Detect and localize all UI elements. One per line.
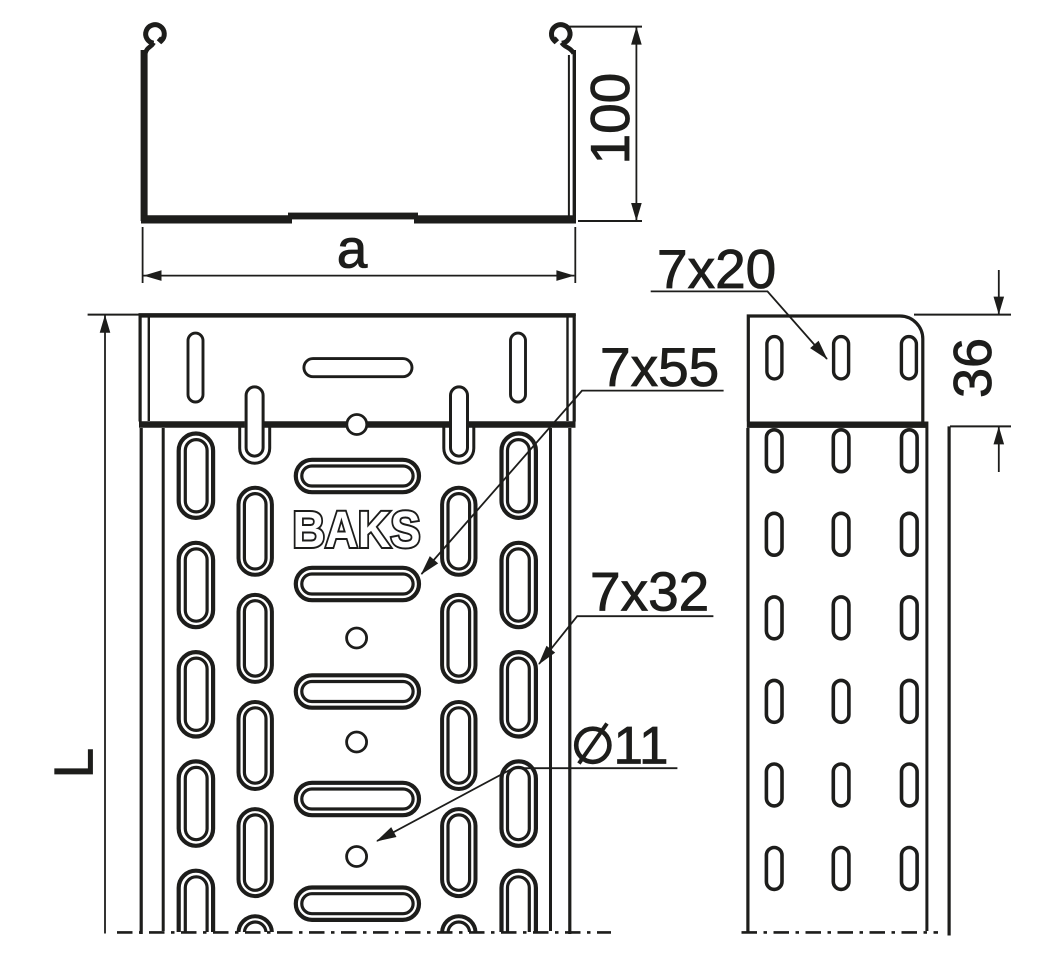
svg-text:L: L xyxy=(43,748,105,779)
svg-text:BAKS: BAKS xyxy=(293,501,421,558)
svg-text:7x55: 7x55 xyxy=(600,336,719,398)
svg-text:7x32: 7x32 xyxy=(590,561,709,623)
svg-text:a: a xyxy=(337,218,368,280)
svg-text:11: 11 xyxy=(614,717,669,776)
svg-text:100: 100 xyxy=(579,73,641,165)
svg-text:36: 36 xyxy=(943,338,1003,398)
